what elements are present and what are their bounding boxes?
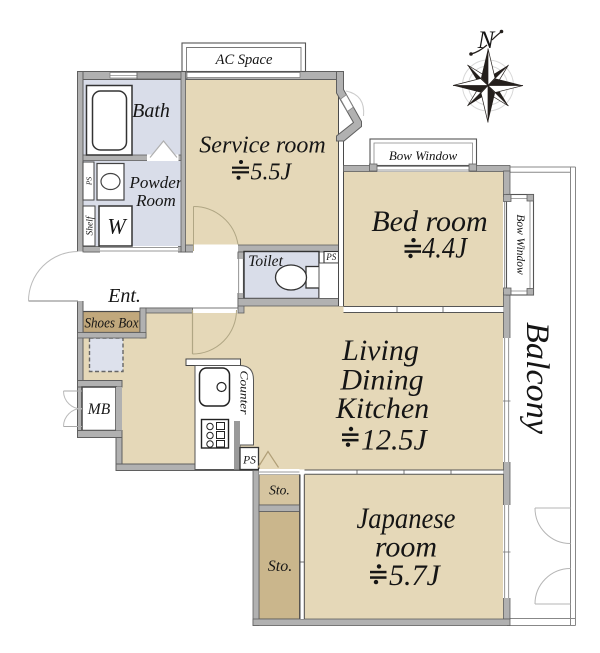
svg-text:5.7J: 5.7J <box>389 559 442 592</box>
svg-text:PS: PS <box>242 455 256 467</box>
svg-text:5.5J: 5.5J <box>251 160 293 186</box>
svg-text:PS: PS <box>85 177 94 187</box>
svg-text:12.5J: 12.5J <box>361 424 429 457</box>
svg-text:Powder: Powder <box>129 173 183 192</box>
svg-text:Room: Room <box>135 191 176 210</box>
svg-text:W: W <box>107 214 127 239</box>
svg-text:Shelf: Shelf <box>85 215 96 235</box>
svg-text:PS: PS <box>325 252 336 262</box>
svg-text:Toilet: Toilet <box>248 253 283 270</box>
svg-text:AC Space: AC Space <box>215 52 273 68</box>
svg-text:Bath: Bath <box>132 100 170 122</box>
svg-text:Balcony: Balcony <box>519 322 555 434</box>
svg-text:Service room: Service room <box>199 133 325 159</box>
svg-text:MB: MB <box>87 401 111 418</box>
svg-text:Living: Living <box>341 334 419 367</box>
svg-text:Ent.: Ent. <box>107 285 141 307</box>
svg-text:Sto.: Sto. <box>268 558 292 575</box>
svg-text:Counter: Counter <box>238 371 252 415</box>
svg-text:4.4J: 4.4J <box>422 232 468 265</box>
svg-text:Kitchen: Kitchen <box>335 392 429 425</box>
svg-text:Bow Window: Bow Window <box>389 148 458 163</box>
svg-text:Sto.: Sto. <box>269 483 290 498</box>
svg-text:Bow Window: Bow Window <box>514 214 526 275</box>
svg-text:Shoes Box: Shoes Box <box>85 316 139 332</box>
